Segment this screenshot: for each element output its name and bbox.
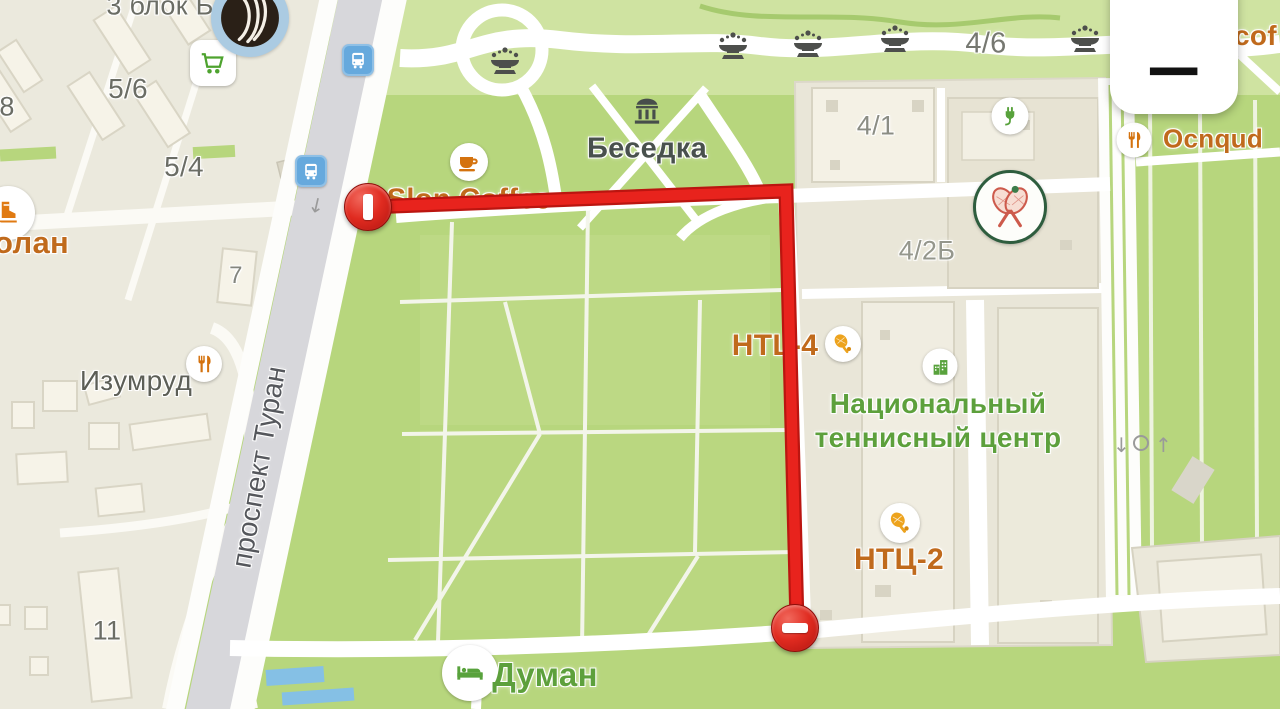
label-duman[interactable]: Думан (492, 656, 598, 694)
fountain-icon (487, 46, 523, 78)
tennis-club-logo-icon[interactable] (973, 170, 1047, 244)
bus-stop-icon[interactable] (295, 155, 327, 187)
label-slon-coffee[interactable]: Slon Coffee (387, 184, 551, 217)
map-view[interactable]: ↓ ↑ ↓ 3 блок Б 78 5/6 5/4 олан 7 Изумруд… (0, 0, 1280, 709)
ev-charging-icon[interactable] (992, 98, 1029, 135)
label-poi-olan[interactable]: олан (0, 225, 69, 261)
label-house-5-6: 5/6 (108, 73, 148, 105)
label-block-b: 3 блок Б (106, 0, 213, 22)
fountain-icon (1067, 24, 1103, 56)
label-poi-ocnqud[interactable]: Ocnqud (1163, 124, 1263, 155)
label-house-4-2b: 4/2Б (899, 236, 955, 267)
label-house-5-4: 5/4 (164, 151, 204, 183)
tennis-racket-icon[interactable] (825, 326, 861, 362)
label-tennis-center-line1[interactable]: Национальный (830, 388, 1046, 420)
label-besedka[interactable]: Беседка (587, 133, 707, 166)
label-house-78: 78 (0, 92, 15, 123)
route-start-marker[interactable] (344, 183, 392, 231)
label-htl-4[interactable]: HTL-4 (732, 329, 819, 363)
zoom-out-button[interactable]: − (1110, 0, 1238, 114)
label-izumrud[interactable]: Изумруд (80, 365, 192, 397)
label-tennis-center-line2[interactable]: теннисный центр (815, 422, 1062, 454)
bus-stop-icon[interactable] (342, 44, 374, 76)
label-house-4-1: 4/1 (857, 111, 895, 142)
no-entry-bar (782, 623, 808, 633)
svg-text:↓: ↓ (1113, 433, 1130, 457)
label-house-4-6: 4/6 (965, 28, 1006, 61)
restaurant-icon[interactable] (1117, 123, 1152, 158)
no-entry-bar (363, 194, 373, 220)
route-end-marker[interactable] (771, 604, 819, 652)
fountain-icon (790, 29, 826, 61)
label-ntc-2[interactable]: НТЦ-2 (854, 543, 944, 577)
pavilion-icon[interactable] (630, 95, 664, 129)
svg-text:↑: ↑ (1155, 433, 1172, 457)
hotel-bed-icon[interactable] (442, 645, 498, 701)
label-poi-cof[interactable]: cof (1234, 20, 1277, 52)
coffee-cup-icon[interactable] (450, 143, 488, 181)
fountain-icon (715, 31, 751, 63)
fountain-icon (877, 24, 913, 56)
building-icon[interactable] (923, 349, 958, 384)
tennis-racket-icon[interactable] (880, 503, 920, 543)
label-house-11: 11 (93, 616, 122, 647)
label-house-7: 7 (229, 262, 243, 290)
